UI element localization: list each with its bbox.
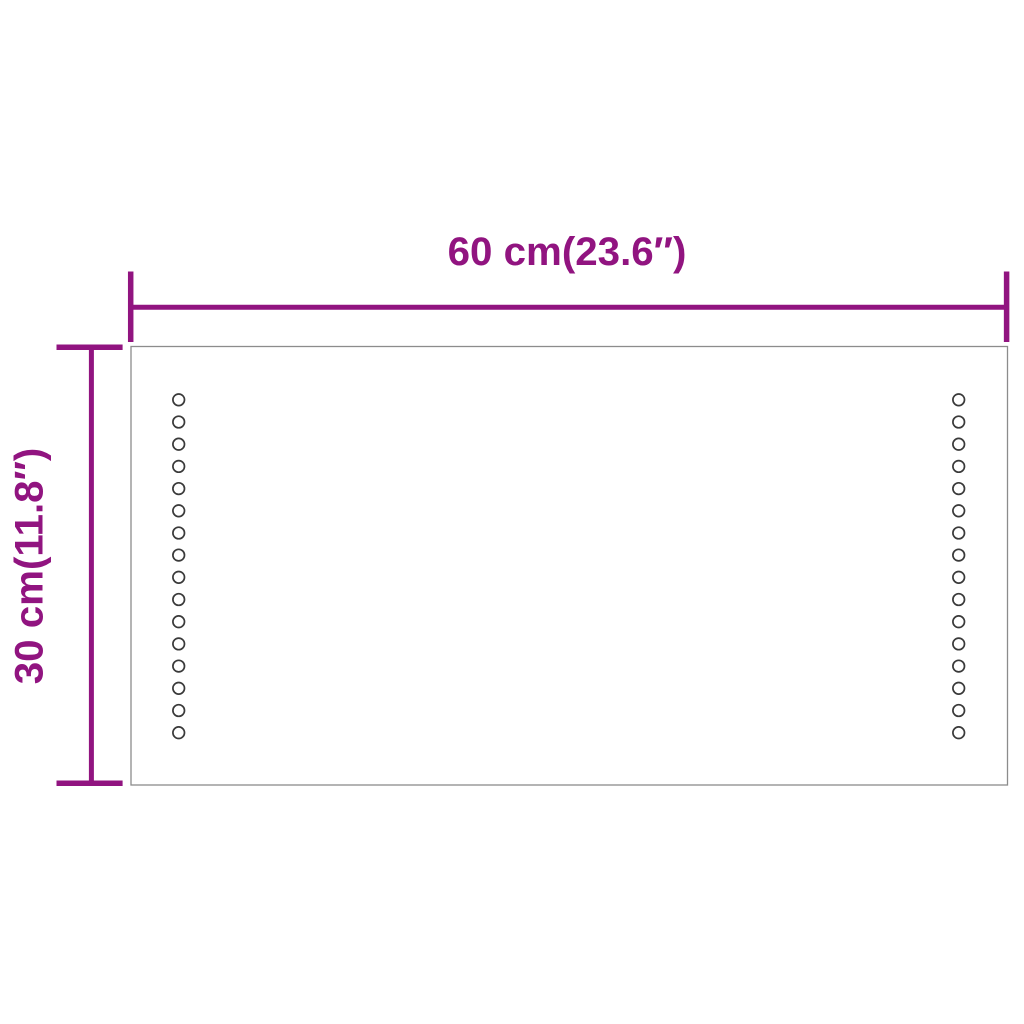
svg-text:30 cm(11.8″): 30 cm(11.8″) bbox=[7, 448, 52, 685]
svg-text:60 cm(23.6″): 60 cm(23.6″) bbox=[448, 229, 687, 274]
